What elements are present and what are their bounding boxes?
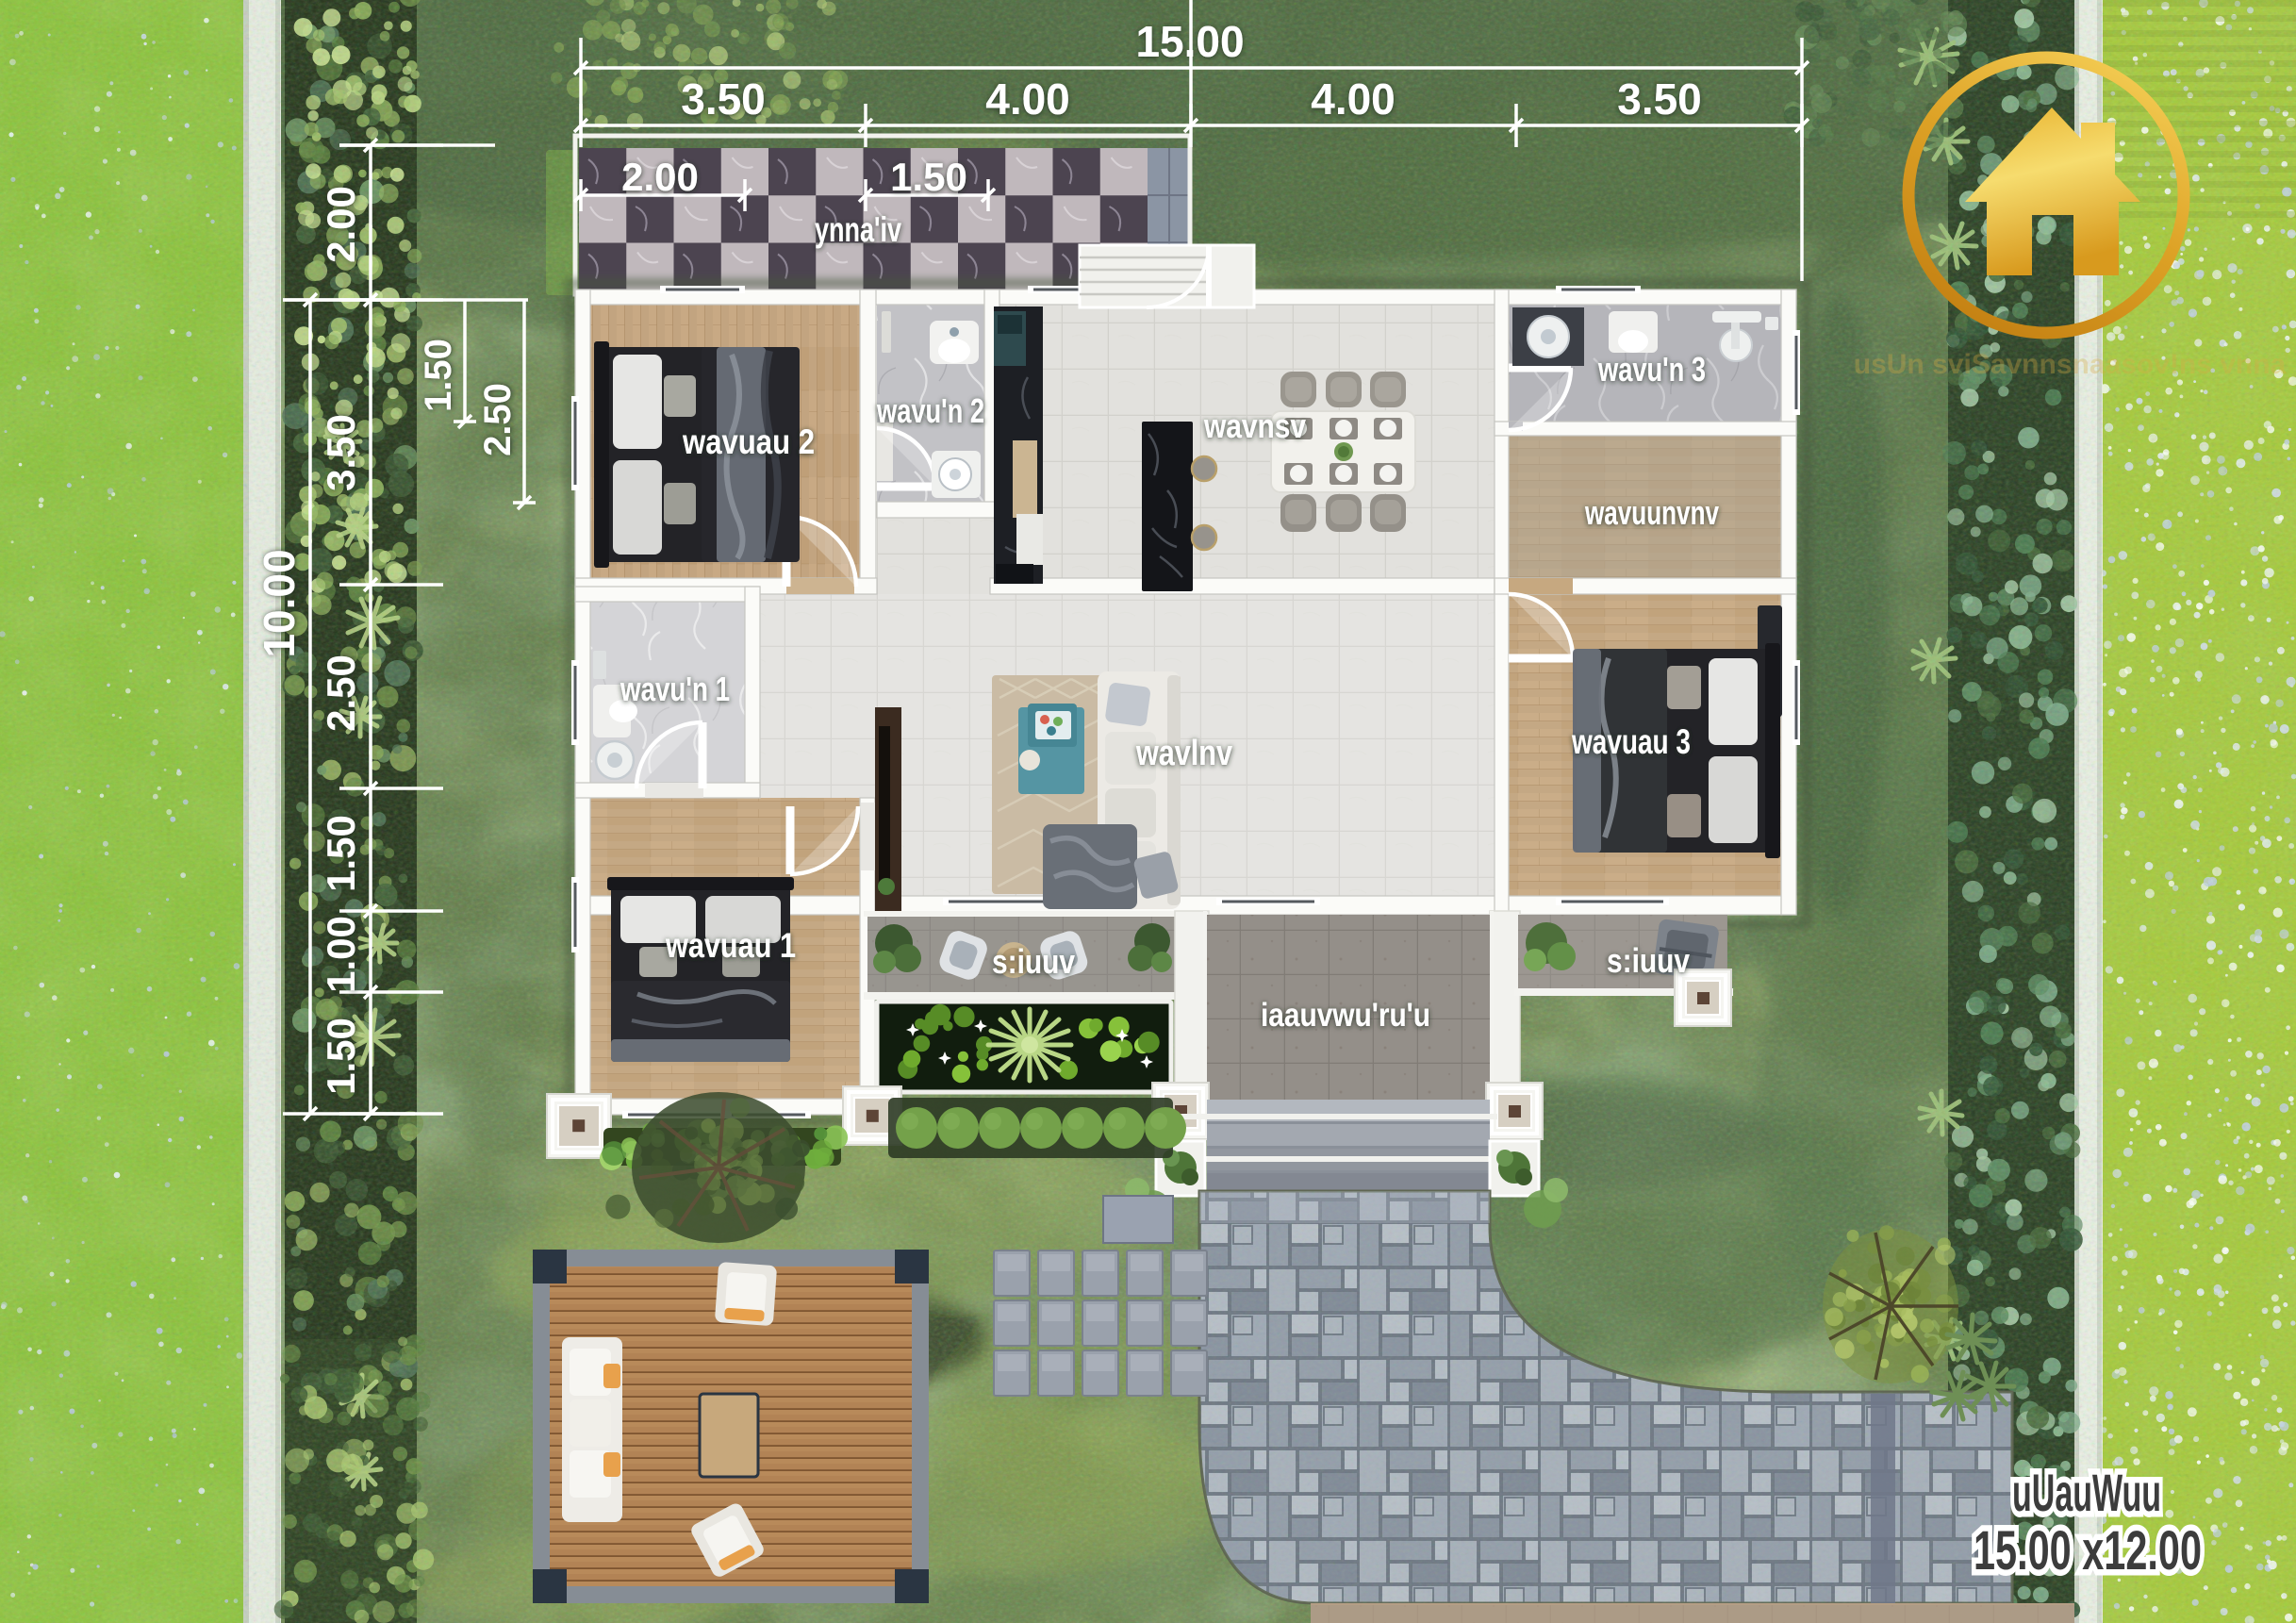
svg-text:2.50: 2.50: [319, 654, 363, 732]
svg-text:2.00: 2.00: [621, 155, 699, 199]
svg-text:s:iuuv: s:iuuv: [992, 942, 1075, 981]
svg-text:wavu'n 3: wavu'n 3: [1597, 350, 1706, 389]
svg-text:3.50: 3.50: [1617, 75, 1702, 124]
svg-text:1.50: 1.50: [319, 1018, 363, 1095]
svg-text:3.50: 3.50: [681, 75, 766, 124]
svg-text:wavuunvnv: wavuunvnv: [1584, 493, 1719, 532]
svg-text:wavuau 2: wavuau 2: [682, 422, 815, 461]
svg-text:2.00: 2.00: [319, 186, 363, 263]
svg-text:4.00: 4.00: [1311, 75, 1396, 124]
svg-text:wavu'n 2: wavu'n 2: [876, 391, 984, 430]
svg-text:3.50: 3.50: [319, 414, 363, 491]
svg-text:uUauWuu: uUauWuu: [2012, 1463, 2161, 1522]
svg-text:1.50: 1.50: [890, 155, 967, 199]
svg-text:2.50: 2.50: [477, 383, 519, 456]
svg-text:usUn sviSavnnsnaasov!ns vnna: usUn sviSavnnsnaasov!ns vnna: [1854, 349, 2287, 380]
svg-text:wavuau 1: wavuau 1: [665, 926, 796, 965]
svg-text:1.50: 1.50: [418, 339, 459, 412]
svg-text:wavu'n 1: wavu'n 1: [619, 670, 730, 708]
svg-text:15.00 x12.00: 15.00 x12.00: [1974, 1520, 2202, 1582]
svg-text:s:iuuv: s:iuuv: [1607, 941, 1690, 980]
svg-text:iaauvwu'ru'u: iaauvwu'ru'u: [1261, 997, 1430, 1034]
svg-text:1.00: 1.00: [319, 916, 363, 993]
svg-text:wavnsv: wavnsv: [1203, 406, 1306, 445]
svg-text:10.00: 10.00: [255, 549, 304, 657]
svg-text:wavuau 3: wavuau 3: [1571, 722, 1691, 761]
svg-text:wavlnv: wavlnv: [1135, 734, 1232, 773]
svg-text:1.50: 1.50: [319, 815, 363, 892]
svg-text:4.00: 4.00: [985, 75, 1070, 124]
svg-text:ynna'iv: ynna'iv: [815, 210, 901, 249]
